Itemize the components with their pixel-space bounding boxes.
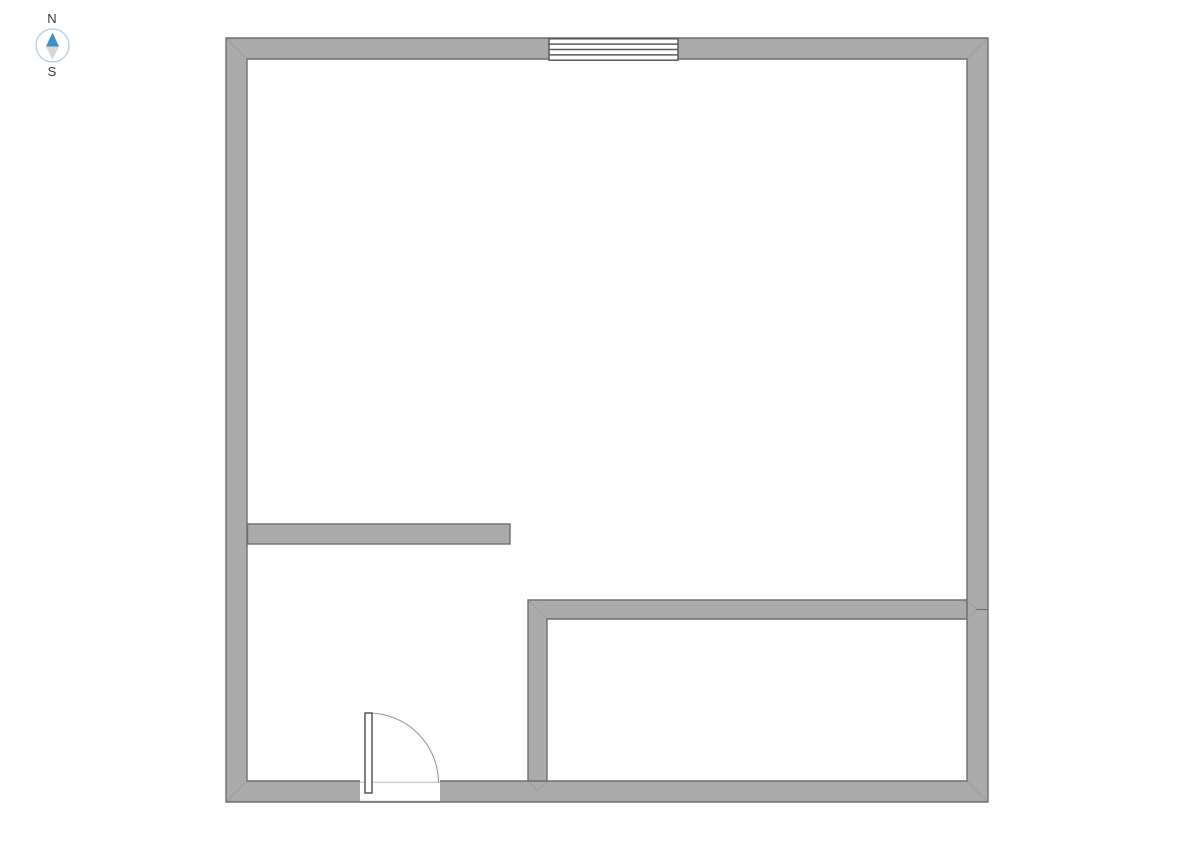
door xyxy=(360,713,440,801)
interior-room-walls xyxy=(528,600,967,781)
floor-plan xyxy=(0,0,1191,841)
floor-plan-canvas: N S xyxy=(0,0,1191,841)
door-leaf xyxy=(365,713,372,793)
outer-walls xyxy=(226,38,988,802)
window xyxy=(549,39,678,60)
door-swing-arc xyxy=(369,713,439,783)
partition-wall xyxy=(248,524,511,544)
